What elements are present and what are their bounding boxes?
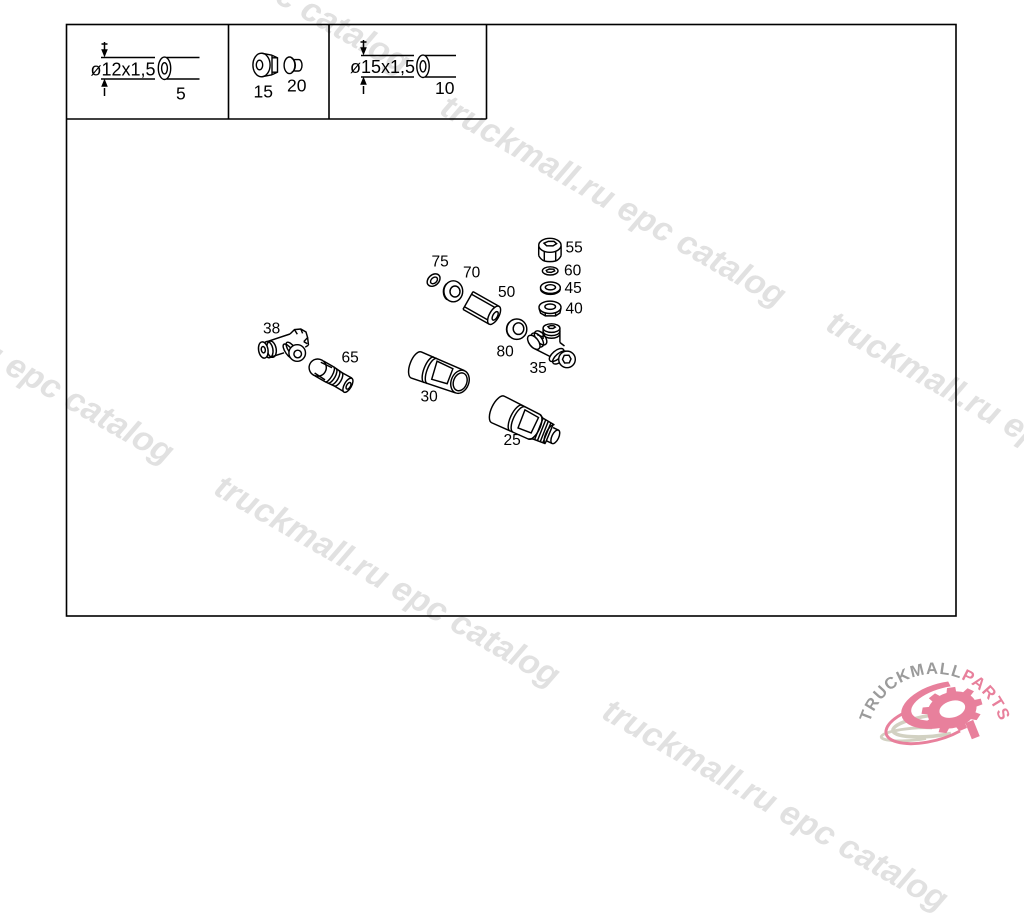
svg-text:38: 38 xyxy=(263,321,280,338)
svg-text:70: 70 xyxy=(463,265,481,282)
svg-text:45: 45 xyxy=(565,280,582,297)
svg-text:20: 20 xyxy=(287,76,307,96)
svg-text:5: 5 xyxy=(176,84,186,104)
svg-text:65: 65 xyxy=(342,350,359,367)
svg-text:15: 15 xyxy=(254,82,273,102)
svg-text:ø15x1,5: ø15x1,5 xyxy=(350,57,415,77)
svg-text:25: 25 xyxy=(504,432,521,449)
svg-text:60: 60 xyxy=(564,263,582,280)
svg-text:10: 10 xyxy=(435,78,455,98)
svg-text:75: 75 xyxy=(432,254,449,271)
svg-text:30: 30 xyxy=(421,389,439,406)
svg-text:ø12x1,5: ø12x1,5 xyxy=(91,60,156,80)
svg-text:50: 50 xyxy=(498,284,516,301)
svg-text:35: 35 xyxy=(530,360,547,377)
svg-text:55: 55 xyxy=(566,240,583,257)
svg-text:80: 80 xyxy=(497,344,515,361)
svg-text:40: 40 xyxy=(566,301,584,318)
